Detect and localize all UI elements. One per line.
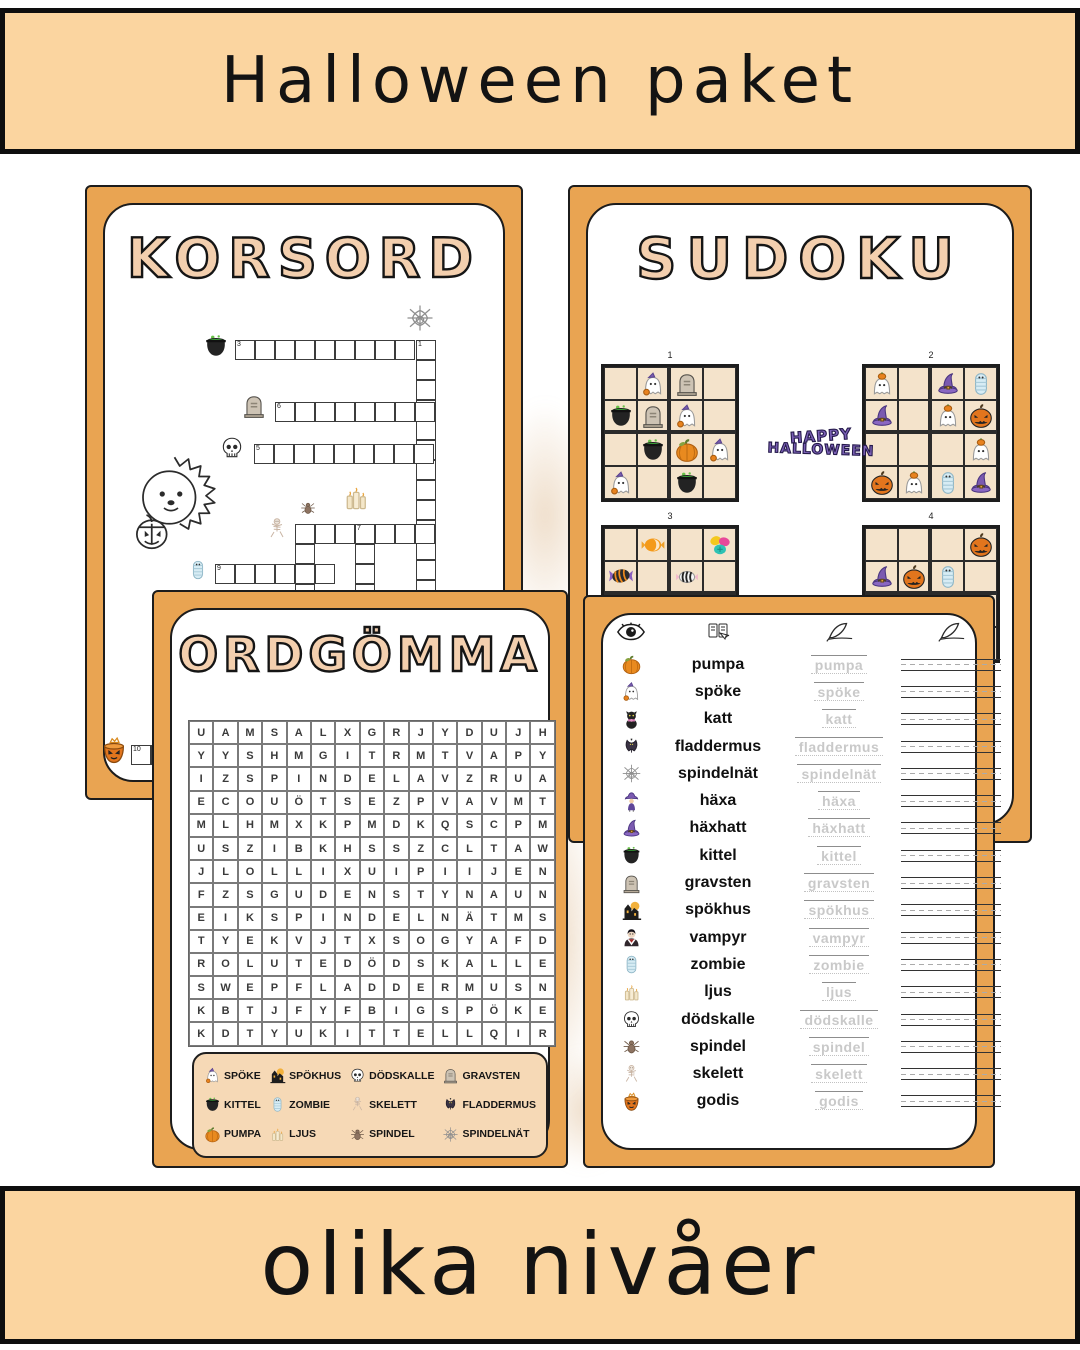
wordsearch-letter-cell: I	[335, 744, 359, 767]
wordsearch-letter-cell: H	[530, 721, 554, 744]
wordsearch-letter-cell: O	[238, 791, 262, 814]
top-banner: Halloween paket	[0, 8, 1080, 154]
wordsearch-letter-cell: N	[433, 907, 457, 930]
tracing-dotted-word: häxa	[818, 791, 860, 810]
witch-hat-icon	[935, 371, 961, 397]
crossword-cell	[395, 340, 415, 360]
tracing-dotted-word: godis	[815, 1091, 863, 1110]
word-list-item: GRAVSTEN	[442, 1067, 536, 1084]
witch-hat-icon	[869, 564, 895, 590]
haunted-house-icon	[621, 900, 642, 921]
crossword-cell	[315, 564, 335, 584]
wordsearch-letter-cell: L	[409, 907, 433, 930]
wordsearch-letter-cell: G	[311, 744, 335, 767]
wordsearch-letter-cell: S	[238, 883, 262, 906]
jack-o-lantern-icon	[901, 564, 927, 590]
wordsearch-letter-cell: Y	[189, 744, 213, 767]
wordsearch-letter-cell: R	[530, 1022, 554, 1045]
crossword-cell	[375, 340, 395, 360]
skeleton-icon	[621, 1064, 642, 1085]
sudoku-cell	[670, 367, 703, 400]
wordsearch-letter-cell: L	[384, 767, 408, 790]
wordsearch-letter-cell: S	[189, 976, 213, 999]
wordsearch-letter-cell: Y	[530, 744, 554, 767]
wordsearch-letter-cell: R	[433, 976, 457, 999]
sudoku-grid-label: 3	[601, 511, 739, 521]
wordsearch-letter-cell: E	[530, 953, 554, 976]
word-list-label: PUMPA	[224, 1128, 261, 1140]
crossword-cell: 1	[416, 340, 436, 360]
wordsearch-letter-cell: J	[482, 860, 506, 883]
sudoku-grid-label: 2	[862, 350, 1000, 360]
wordsearch-letter-cell: V	[457, 744, 481, 767]
wordsearch-letter-cell: A	[482, 883, 506, 906]
tracing-dotted-word: spindel	[809, 1037, 870, 1056]
writing-guide-lines	[901, 959, 1001, 971]
tracing-row: häxahäxa	[605, 787, 979, 814]
sudoku-cell	[604, 561, 637, 594]
ghost-hat-icon	[640, 371, 666, 397]
sudoku-cell	[931, 466, 964, 499]
wordsearch-letter-cell: O	[409, 930, 433, 953]
wordsearch-letter-cell: M	[506, 907, 530, 930]
sudoku-cell	[637, 528, 670, 561]
word-list-label: SPÖKE	[224, 1070, 261, 1082]
sudoku-cell	[931, 400, 964, 433]
crossword-clue-number: 10	[133, 746, 141, 754]
wordsearch-letter-cell: I	[311, 860, 335, 883]
happy-halloween-line2: HALLOWEEN	[766, 440, 876, 460]
wordsearch-letter-cell: X	[335, 721, 359, 744]
wordsearch-letter-cell: S	[433, 999, 457, 1022]
happy-halloween-logo: HAPPY HALLOWEEN	[766, 427, 876, 458]
sudoku-cell	[964, 528, 997, 561]
word-list-label: SPÖKHUS	[289, 1070, 341, 1082]
writing-guide-lines	[901, 686, 1001, 698]
writing-guide-lines	[901, 877, 1001, 889]
wordsearch-letter-cell: P	[287, 907, 311, 930]
writing-guide-lines	[901, 822, 1001, 834]
crossword-cell	[235, 564, 255, 584]
wordsearch-letter-cell: D	[384, 976, 408, 999]
tracing-word: häxhatt	[690, 819, 747, 837]
wordsearch-letter-cell: L	[506, 953, 530, 976]
wordsearch-letter-cell: F	[287, 999, 311, 1022]
candy-stripe-icon	[674, 564, 700, 590]
sudoku-cell	[703, 400, 736, 433]
sudoku-cell	[670, 561, 703, 594]
wordsearch-letter-cell: M	[506, 791, 530, 814]
wordsearch-letter-cell: S	[262, 907, 286, 930]
wordsearch-letter-cell: R	[189, 953, 213, 976]
cauldron-icon	[203, 333, 229, 359]
wordsearch-letter-cell: P	[262, 767, 286, 790]
sudoku-grid	[862, 364, 1000, 502]
wordsearch-letter-cell: D	[213, 1022, 237, 1045]
candles-icon	[269, 1126, 286, 1143]
writing-guide-lines	[901, 1068, 1001, 1080]
top-banner-title: Halloween paket	[221, 44, 859, 118]
sudoku-cell	[898, 466, 931, 499]
wordsearch-letter-cell: N	[530, 860, 554, 883]
candles-icon	[341, 483, 371, 513]
crossword-cell	[414, 444, 434, 464]
word-list-label: KITTEL	[224, 1099, 261, 1111]
ghost-hat-icon	[608, 470, 634, 496]
wordsearch-letter-cell: T	[189, 930, 213, 953]
wordsearch-letter-cell: N	[335, 907, 359, 930]
crossword-cell: 10	[131, 745, 151, 765]
crossword-cell	[294, 444, 314, 464]
sudoku-cell	[898, 433, 931, 466]
wordsearch-letter-cell: S	[238, 744, 262, 767]
wordsearch-letter-cell: M	[360, 814, 384, 837]
wordsearch-letter-cell: S	[360, 837, 384, 860]
ghost-pumpkin-icon	[935, 403, 961, 429]
candy-wrap-icon	[608, 564, 634, 590]
tracing-word: godis	[697, 1092, 740, 1110]
writing-guide-lines	[901, 713, 1001, 725]
wordsearch-letter-cell: N	[360, 883, 384, 906]
wordsearch-letter-cell: Z	[409, 837, 433, 860]
wordsearch-letter-cell: A	[335, 976, 359, 999]
wordsearch-letter-cell: T	[360, 1022, 384, 1045]
wordsearch-letter-cell: X	[360, 930, 384, 953]
wordsearch-letter-cell: Y	[433, 883, 457, 906]
wordsearch-letter-cell: Q	[433, 814, 457, 837]
gravestone-icon	[640, 403, 666, 429]
wordsearch-letter-cell: U	[482, 721, 506, 744]
wordsearch-letter-cell: N	[530, 883, 554, 906]
web-icon	[405, 303, 435, 333]
sudoku-grid-label: 4	[862, 511, 1000, 521]
wordsearch-letter-cell: G	[360, 721, 384, 744]
wordsearch-letter-cell: L	[457, 837, 481, 860]
tracing-dotted-word: zombie	[809, 955, 868, 974]
tracing-page: pumpapumpaspökespökekattkattfladdermusfl…	[583, 595, 995, 1168]
bat-icon	[442, 1096, 459, 1113]
crossword-cell	[314, 444, 334, 464]
wordsearch-letter-cell: Y	[213, 744, 237, 767]
sudoku-cell	[703, 433, 736, 466]
wordsearch-letter-cell: P	[506, 744, 530, 767]
wordsearch-letter-cell: S	[238, 767, 262, 790]
writing-guide-lines	[901, 904, 1001, 916]
wordsearch-letter-cell: H	[335, 837, 359, 860]
tracing-word: ljus	[704, 983, 732, 1001]
sudoku-grid	[601, 364, 739, 502]
word-list-label: FLADDERMUS	[462, 1099, 536, 1111]
ghost-hat-icon	[204, 1067, 221, 1084]
spider-icon	[349, 1126, 366, 1143]
crossword-cell	[335, 340, 355, 360]
wordsearch-letter-cell: D	[360, 976, 384, 999]
word-list-label: SKELETT	[369, 1099, 417, 1111]
mummy-icon	[621, 954, 642, 975]
tracing-word: spökhus	[685, 901, 751, 919]
wordsearch-letter-cell: T	[335, 930, 359, 953]
writing-guide-lines	[901, 1095, 1001, 1107]
crossword-cell	[295, 402, 315, 422]
wordsearch-letter-cell: X	[287, 814, 311, 837]
wordsearch-letter-cell: S	[506, 976, 530, 999]
bottom-banner: olika nivåer	[0, 1186, 1080, 1344]
word-list-item: ZOMBIE	[269, 1096, 341, 1113]
sudoku-cell	[703, 528, 736, 561]
tracing-row: spökespöke	[605, 678, 979, 705]
word-list-item: DÖDSKALLE	[349, 1067, 434, 1084]
wordsearch-letter-cell: A	[213, 721, 237, 744]
wordsearch-letter-cell: P	[409, 860, 433, 883]
crossword-cell	[295, 524, 315, 544]
writing-guide-lines	[901, 795, 1001, 807]
wordsearch-letter-cell: Y	[262, 1022, 286, 1045]
wordsearch-letter-cell: N	[457, 883, 481, 906]
wordsearch-letter-cell: E	[189, 907, 213, 930]
skeleton-icon	[349, 1096, 366, 1113]
wordsearch-letter-cell: L	[262, 860, 286, 883]
candy-bucket-icon	[99, 735, 129, 765]
sudoku-cell	[931, 433, 964, 466]
wordsearch-letter-cell: U	[262, 791, 286, 814]
wordsearch-letter-cell: D	[384, 953, 408, 976]
skeleton-icon	[265, 517, 289, 541]
crossword-cell	[334, 444, 354, 464]
wordsearch-letter-cell: L	[457, 1022, 481, 1045]
witch-icon	[621, 791, 642, 812]
wordsearch-letter-cell: M	[409, 744, 433, 767]
wordsearch-letter-cell: Ö	[287, 791, 311, 814]
sudoku-cell	[964, 400, 997, 433]
wordsearch-letter-cell: N	[311, 767, 335, 790]
writing-guide-lines	[901, 986, 1001, 998]
ghost-hat-icon	[707, 437, 733, 463]
wordsearch-letter-cell: P	[335, 814, 359, 837]
tracing-word: häxa	[700, 792, 736, 810]
cauldron-icon	[204, 1096, 221, 1113]
haunted-house-icon	[269, 1067, 286, 1084]
wordsearch-letter-cell: I	[335, 1022, 359, 1045]
wordsearch-letter-cell: M	[530, 814, 554, 837]
jack-o-lantern-icon	[869, 470, 895, 496]
wordsearch-letter-cell: E	[335, 883, 359, 906]
tracing-row: spindelnätspindelnät	[605, 760, 979, 787]
crossword-cell: 3	[235, 340, 255, 360]
wordsearch-letter-cell: U	[287, 883, 311, 906]
sudoku-cell	[865, 367, 898, 400]
sudoku-cell	[865, 528, 898, 561]
word-list-label: SPINDEL	[369, 1128, 415, 1140]
crossword-cell	[375, 524, 395, 544]
tracing-word: vampyr	[690, 929, 747, 947]
wordsearch-letter-cell: B	[213, 999, 237, 1022]
wordsearch-letter-cell: U	[189, 721, 213, 744]
wordsearch-letter-cell: L	[311, 976, 335, 999]
flyer-canvas: Halloween paket KORSORD 316527910 SUDOKU…	[0, 0, 1080, 1350]
candy-orange-icon	[640, 532, 666, 558]
wordsearch-letter-cell: E	[238, 976, 262, 999]
writing-guide-lines	[901, 659, 1001, 671]
mummy-icon	[269, 1096, 286, 1113]
web-icon	[442, 1126, 459, 1143]
wordsearch-letter-cell: U	[287, 1022, 311, 1045]
sudoku-cell	[865, 561, 898, 594]
wordsearch-letter-cell: T	[384, 1022, 408, 1045]
wordsearch-letter-cell: J	[262, 999, 286, 1022]
wordsearch-letter-cell: E	[384, 907, 408, 930]
wordsearch-letter-cell: Ä	[457, 907, 481, 930]
tracing-dotted-word: gravsten	[804, 873, 874, 892]
skull-icon	[621, 1009, 642, 1030]
tracing-word: dödskalle	[681, 1011, 755, 1029]
wordsearch-letter-cell: D	[335, 767, 359, 790]
jack-o-lantern-icon	[968, 403, 994, 429]
wordsearch-letter-cell: E	[409, 1022, 433, 1045]
wordsearch-letter-cell: C	[213, 791, 237, 814]
wordsearch-letter-cell: U	[262, 953, 286, 976]
wordsearch-letter-cell: K	[189, 1022, 213, 1045]
crossword-cell	[395, 402, 415, 422]
wordsearch-letter-cell: D	[311, 883, 335, 906]
wordsearch-letter-cell: E	[189, 791, 213, 814]
tracing-row: vampyrvampyr	[605, 924, 979, 951]
wordsearch-letter-cell: T	[238, 999, 262, 1022]
sudoku-cell	[670, 400, 703, 433]
tracing-dotted-word: ljus	[822, 982, 856, 1001]
sudoku-cell	[604, 433, 637, 466]
wordsearch-letter-cell: F	[287, 976, 311, 999]
spider-icon	[621, 1036, 642, 1057]
wordsearch-letter-cell: I	[287, 767, 311, 790]
wordsearch-letter-cell: E	[311, 953, 335, 976]
wordsearch-letter-cell: I	[506, 1022, 530, 1045]
wordsearch-letter-cell: Ö	[360, 953, 384, 976]
wordsearch-letter-cell: U	[360, 860, 384, 883]
sudoku-cell	[703, 561, 736, 594]
tracing-dotted-word: spökhus	[804, 900, 873, 919]
sudoku-cell	[637, 400, 670, 433]
gravestone-icon	[674, 371, 700, 397]
wordsearch-letter-cell: I	[189, 767, 213, 790]
wordsearch-letter-cell: S	[384, 883, 408, 906]
crossword-cell: 9	[215, 564, 235, 584]
crossword-cell	[416, 360, 436, 380]
tracing-word: kittel	[699, 847, 736, 865]
wordsearch-letter-cell: T	[311, 791, 335, 814]
sudoku-cell	[964, 561, 997, 594]
wordsearch-letter-cell: J	[506, 721, 530, 744]
crossword-cell	[275, 564, 295, 584]
wordsearch-letter-cell: Y	[457, 930, 481, 953]
crossword-cell	[255, 564, 275, 584]
sudoku-cell	[931, 561, 964, 594]
bat-icon	[621, 736, 642, 757]
crossword-clue-number: 9	[217, 565, 221, 573]
word-list-item: SPINDELNÄT	[442, 1126, 536, 1143]
wordsearch-letter-cell: V	[433, 767, 457, 790]
word-list-item: FLADDERMUS	[442, 1096, 536, 1113]
wordsearch-letter-cell: R	[384, 744, 408, 767]
tracing-row: häxhatthäxhatt	[605, 815, 979, 842]
wordsearch-letter-cell: J	[189, 860, 213, 883]
sudoku-cell	[964, 433, 997, 466]
wordsearch-letter-cell: U	[506, 883, 530, 906]
tracing-row: spökhusspökhus	[605, 897, 979, 924]
wordsearch-letter-cell: A	[530, 767, 554, 790]
tracing-dotted-word: spöke	[814, 682, 865, 701]
tracing-row: pumpapumpa	[605, 651, 979, 678]
crossword-cell: 7	[355, 524, 375, 544]
sudoku-cell	[865, 466, 898, 499]
wordsearch-grid: UAMSALXGRJYDUJHYYSHMGITRMTVAPYIZSPINDELA…	[188, 720, 556, 1047]
wordsearch-letter-cell: T	[238, 1022, 262, 1045]
witch-hat-icon	[968, 470, 994, 496]
crossword-cell	[335, 524, 355, 544]
tracing-dotted-word: pumpa	[811, 655, 867, 674]
sudoku-cell	[670, 466, 703, 499]
wordsearch-letter-cell: R	[482, 767, 506, 790]
wordsearch-letter-cell: Y	[213, 930, 237, 953]
gravestone-icon	[442, 1067, 459, 1084]
wordsearch-letter-cell: V	[482, 791, 506, 814]
wordsearch-word-list: SPÖKESPÖKHUSDÖDSKALLEGRAVSTENKITTELZOMBI…	[192, 1052, 548, 1158]
wordsearch-letter-cell: K	[311, 837, 335, 860]
crossword-cell	[295, 544, 315, 564]
sudoku-cell	[964, 466, 997, 499]
tracing-row: kittelkittel	[605, 842, 979, 869]
wordsearch-letter-cell: M	[238, 721, 262, 744]
mummy-icon	[968, 371, 994, 397]
crossword-cell	[354, 444, 374, 464]
tracing-header-row	[605, 617, 979, 651]
wordsearch-letter-cell: D	[530, 930, 554, 953]
crossword-cell	[416, 420, 436, 440]
hedgehog-illustration	[122, 445, 227, 557]
spider-icon	[299, 499, 317, 517]
tracing-word: spindel	[690, 1038, 746, 1056]
crossword-cell	[415, 524, 435, 544]
wordsearch-letter-cell: L	[238, 953, 262, 976]
wordsearch-letter-cell: D	[457, 721, 481, 744]
writing-guide-lines	[901, 768, 1001, 780]
wordsearch-letter-cell: S	[384, 837, 408, 860]
cauldron-icon	[674, 470, 700, 496]
crossword-cell	[295, 564, 315, 584]
wordsearch-letter-cell: D	[360, 907, 384, 930]
crossword-cell	[335, 402, 355, 422]
crossword-cell	[416, 380, 436, 400]
tracing-row: ljusljus	[605, 979, 979, 1006]
wordsearch-letter-cell: C	[482, 814, 506, 837]
wordsearch-letter-cell: H	[238, 814, 262, 837]
wordsearch-letter-cell: E	[506, 860, 530, 883]
ghost-hat-icon	[674, 403, 700, 429]
crossword-cell	[416, 560, 436, 580]
wordsearch-letter-cell: I	[311, 907, 335, 930]
wordsearch-letter-cell: P	[457, 999, 481, 1022]
tracing-word: pumpa	[692, 656, 744, 674]
tracing-dotted-word: häxhatt	[808, 818, 869, 837]
wordsearch-letter-cell: O	[238, 860, 262, 883]
wordsearch-letter-cell: F	[189, 883, 213, 906]
wordsearch-letter-cell: T	[360, 744, 384, 767]
wordsearch-letter-cell: T	[409, 883, 433, 906]
crossword-cell	[255, 340, 275, 360]
sudoku-cell	[670, 433, 703, 466]
wordsearch-letter-cell: S	[409, 953, 433, 976]
word-list-item: SPÖKE	[204, 1067, 261, 1084]
gravestone-icon	[621, 873, 642, 894]
